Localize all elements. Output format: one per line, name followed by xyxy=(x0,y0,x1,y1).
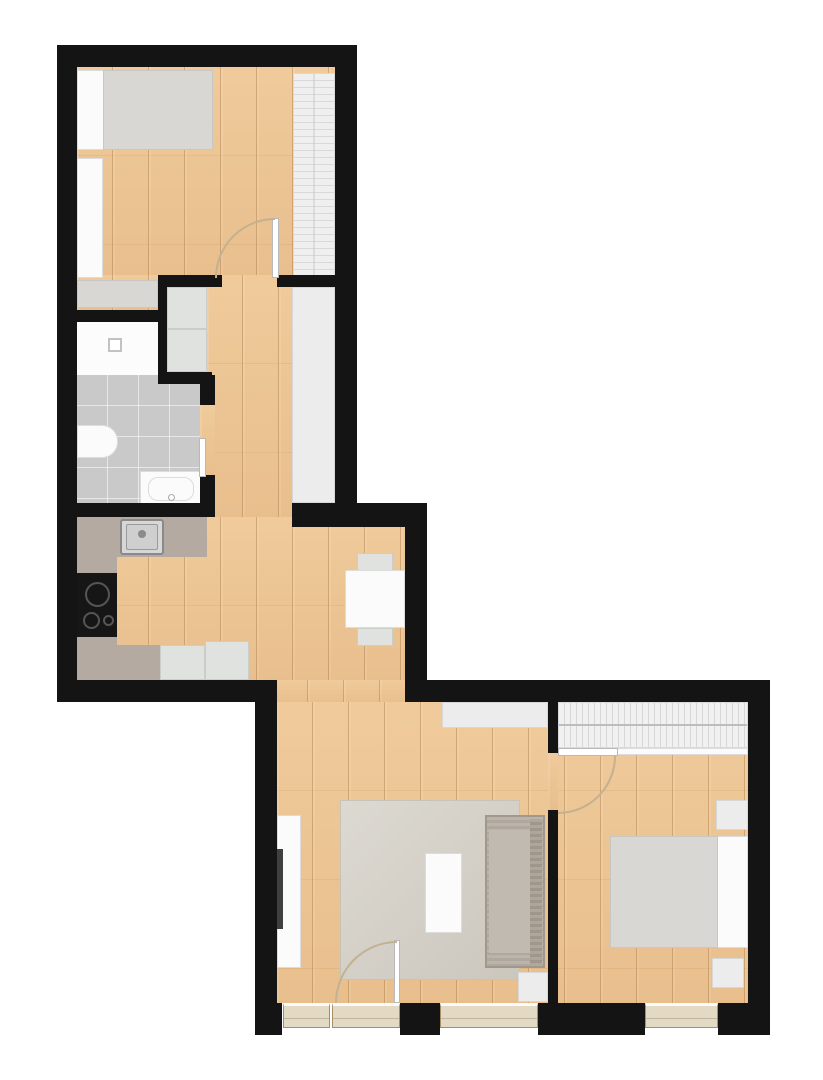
wardrobe-bottom xyxy=(558,702,748,748)
wall-room-divider-bot xyxy=(548,810,558,1003)
wall-bottom-1 xyxy=(255,1003,282,1035)
door-bedroom-bot-leaf xyxy=(558,748,618,756)
toilet xyxy=(77,425,118,458)
bath-faucet-dot xyxy=(168,494,175,501)
utility-box-top xyxy=(167,287,207,329)
burner-medium xyxy=(83,612,100,629)
dining-chair-top xyxy=(357,553,393,571)
wall-bedroom-top-right xyxy=(277,275,335,287)
kitchen-appliance-1 xyxy=(160,645,205,680)
wardrobe-top-right xyxy=(293,73,335,278)
dresser-top xyxy=(77,280,158,308)
nightstand-top xyxy=(716,800,748,830)
dining-chair-bottom xyxy=(357,628,393,646)
wall-dining-right xyxy=(405,503,427,702)
couch-seat xyxy=(489,830,530,953)
wardrobe-top-left xyxy=(77,158,103,278)
door-bathroom-leaf xyxy=(199,438,206,477)
couch-back xyxy=(530,819,542,964)
bed-top-duvet xyxy=(103,70,213,150)
window-bedroom-sill xyxy=(645,1003,718,1028)
window-balcony-sill-a xyxy=(283,1003,330,1028)
floor-passage xyxy=(272,680,405,702)
utility-box-bottom xyxy=(167,329,207,372)
side-table xyxy=(518,972,548,1002)
wall-room-divider-top xyxy=(548,702,558,753)
kitchen-faucet xyxy=(138,530,146,538)
wall-niche-top xyxy=(167,275,222,287)
nightstand-bottom xyxy=(712,958,744,988)
wall-bath-right-b xyxy=(200,475,215,503)
wall-bath-divider xyxy=(158,275,167,384)
hall-closet xyxy=(292,287,335,503)
wall-bottom-3 xyxy=(538,1003,645,1035)
dining-table xyxy=(345,570,405,628)
wall-kitchen-bottom xyxy=(57,680,272,702)
wall-living-left xyxy=(255,680,277,1035)
living-sideboard xyxy=(442,702,548,728)
tv xyxy=(277,849,283,929)
wall-bath-bottom xyxy=(57,503,215,517)
kitchen-appliance-2 xyxy=(205,641,249,680)
wall-top xyxy=(57,45,357,67)
burner-large xyxy=(85,582,110,607)
floor-hallway xyxy=(207,275,292,517)
wall-bath-right-a xyxy=(200,375,215,405)
wall-bedroom-top-left xyxy=(77,310,158,322)
wall-right-upper xyxy=(335,45,357,527)
kitchen-counter-bottom xyxy=(77,645,160,680)
burner-small xyxy=(103,615,114,626)
window-balcony-sill-b xyxy=(332,1003,400,1028)
window-living-sill xyxy=(440,1003,538,1028)
wall-bottom-4 xyxy=(718,1003,770,1035)
shower-drain xyxy=(108,338,122,352)
wall-block-c-right xyxy=(748,680,770,1035)
coffee-table xyxy=(425,853,462,933)
wall-bottom-2 xyxy=(400,1003,440,1035)
wall-block-c-top xyxy=(405,680,770,702)
bed-bottom-duvet xyxy=(610,836,718,948)
floor-bedroom-doorway xyxy=(548,753,558,810)
floor-plan xyxy=(0,0,823,1080)
wall-left xyxy=(57,45,77,702)
